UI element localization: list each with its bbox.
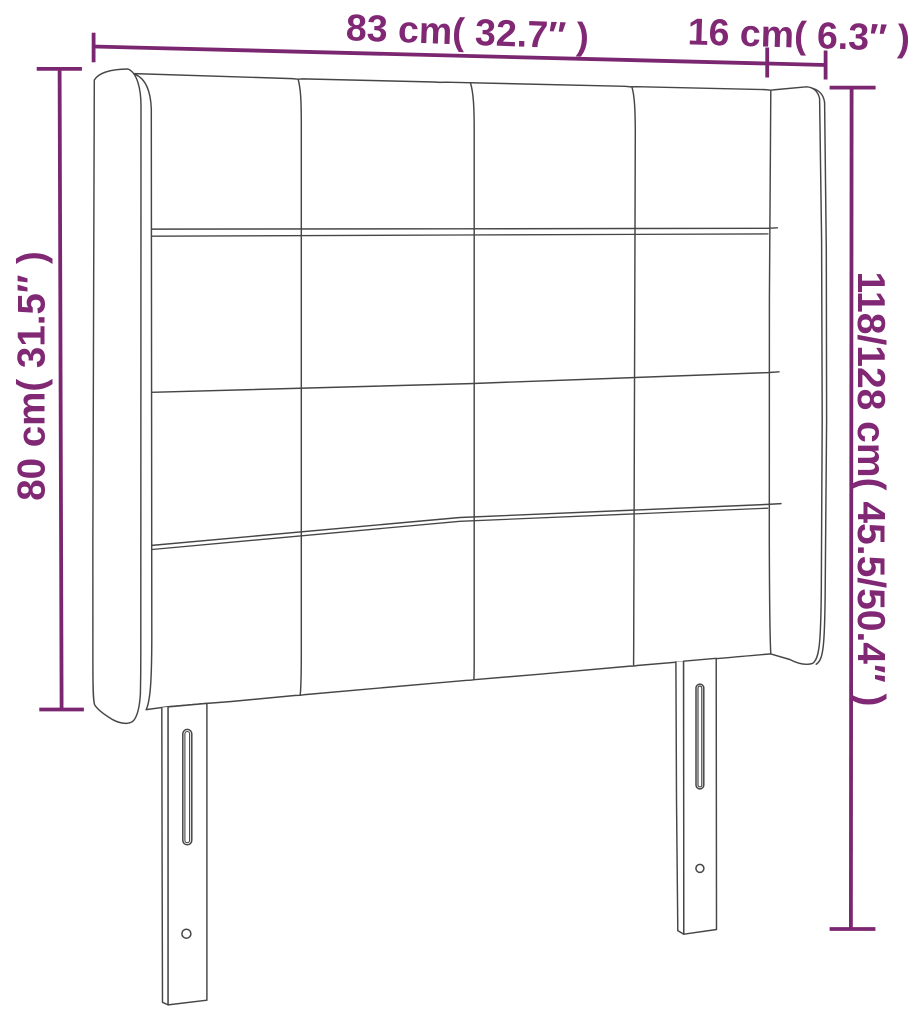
- svg-text:80 cm( 31.5″ ): 80 cm( 31.5″ ): [11, 251, 54, 501]
- svg-text:16 cm( 6.3″ ): 16 cm( 6.3″ ): [687, 10, 910, 59]
- svg-text:83 cm( 32.7″ ): 83 cm( 32.7″ ): [345, 6, 589, 57]
- svg-text:118/128 cm( 45.5/50.4″ ): 118/128 cm( 45.5/50.4″ ): [849, 272, 892, 707]
